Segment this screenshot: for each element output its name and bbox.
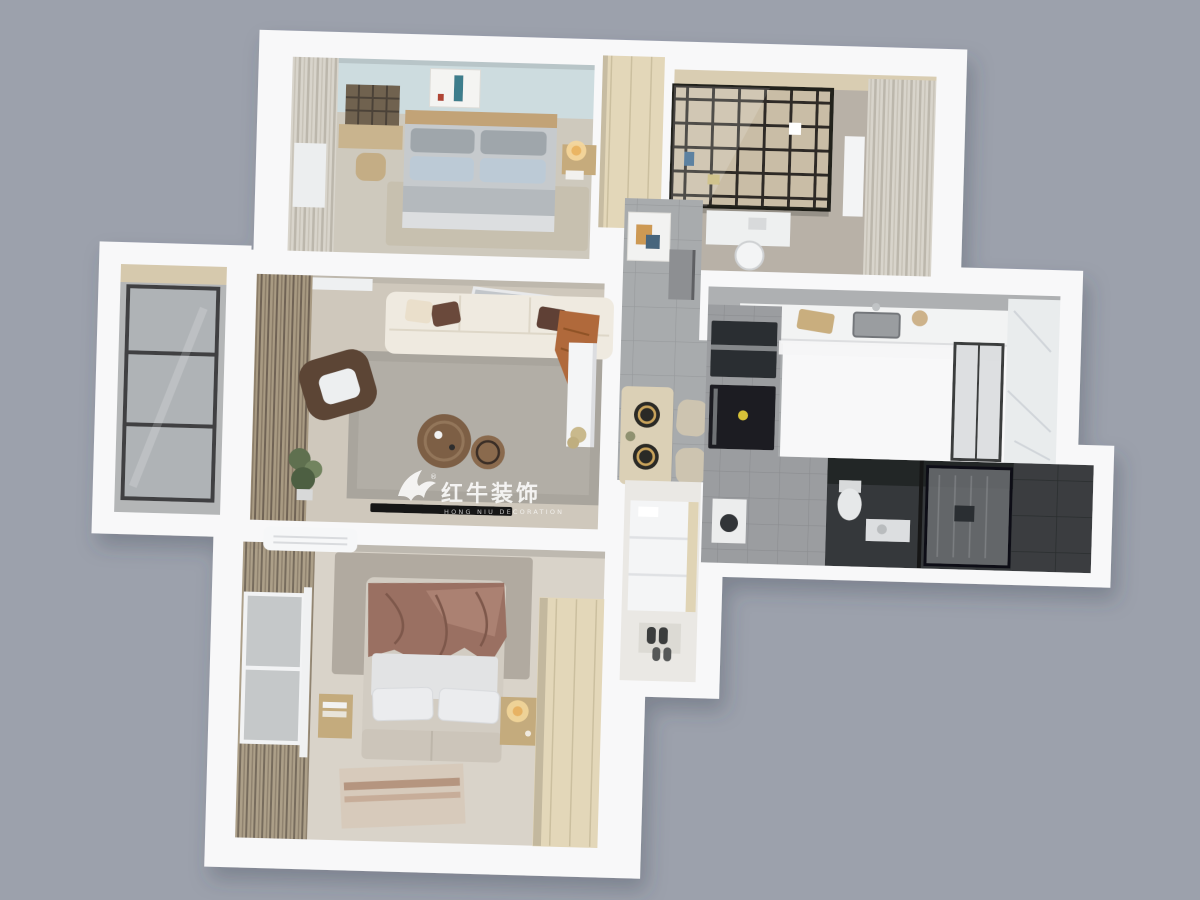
vanity bbox=[866, 519, 911, 542]
master-bed bbox=[361, 577, 508, 763]
marble-wall bbox=[1004, 299, 1061, 466]
pillow-1 bbox=[372, 687, 433, 720]
pillow-blue-2 bbox=[479, 158, 546, 184]
wall-art bbox=[430, 69, 481, 108]
registered-mark: ® bbox=[430, 473, 437, 481]
dining-chair-1 bbox=[675, 399, 708, 438]
bookshelf-glass bbox=[671, 85, 832, 216]
bench-seam bbox=[431, 731, 432, 761]
pillow-grey-2 bbox=[480, 130, 547, 156]
living-rug-inner bbox=[357, 361, 592, 495]
study-curtains bbox=[863, 79, 936, 277]
dining-set bbox=[619, 386, 709, 486]
plant-pot bbox=[296, 489, 312, 500]
desk-chair bbox=[355, 153, 386, 182]
watermark-en: HONG NIU DECORATION bbox=[444, 508, 564, 516]
bathroom-dark-tiles bbox=[1011, 463, 1094, 573]
floorplan-render: ® 红牛装饰 HONG NIU DECORATION bbox=[0, 0, 1200, 900]
book-2 bbox=[322, 711, 346, 718]
floorplan-svg: ® 红牛装饰 HONG NIU DECORATION bbox=[0, 0, 1200, 900]
room-corridor bbox=[620, 480, 702, 682]
pillow-cream bbox=[404, 299, 433, 324]
kitchen-glass-door bbox=[952, 343, 1003, 460]
desk bbox=[338, 124, 403, 150]
book-1 bbox=[323, 702, 347, 709]
slipper-4 bbox=[663, 647, 671, 661]
shower-niche bbox=[954, 505, 974, 522]
pillow-blue-1 bbox=[409, 156, 474, 182]
art-shape-teal bbox=[454, 75, 464, 101]
pillow-grey-1 bbox=[410, 128, 475, 154]
slipper-1 bbox=[647, 627, 656, 644]
tray bbox=[638, 507, 658, 518]
room-living bbox=[250, 274, 615, 530]
master-wardrobe bbox=[533, 598, 604, 848]
laptop bbox=[748, 217, 766, 229]
marble-partition bbox=[1004, 299, 1061, 466]
room-study bbox=[669, 69, 936, 276]
magazine bbox=[566, 170, 584, 179]
shelf-unit bbox=[345, 84, 400, 125]
balcony-wood-trim bbox=[120, 264, 226, 285]
master-window bbox=[241, 586, 312, 758]
window-panel bbox=[293, 143, 327, 208]
room-bedroom-secondary bbox=[287, 57, 598, 259]
balcony-glazing bbox=[122, 286, 218, 500]
sink bbox=[853, 312, 900, 337]
watermark-cn: 红牛装饰 bbox=[441, 481, 541, 507]
slipper-2 bbox=[659, 627, 668, 644]
shower-enclosure bbox=[925, 467, 1012, 567]
window-bar bbox=[244, 668, 302, 670]
master-nightstand-right bbox=[500, 697, 537, 746]
desk-chair-white bbox=[735, 241, 764, 270]
tall-unit-column bbox=[704, 304, 782, 458]
pillow-2 bbox=[438, 688, 500, 724]
room-master-bedroom bbox=[235, 526, 606, 848]
slipper-3 bbox=[652, 647, 660, 661]
master-nightstand-left bbox=[318, 694, 353, 739]
room-bathroom bbox=[701, 454, 1094, 573]
foot-rug bbox=[339, 763, 465, 828]
toilet bbox=[837, 480, 862, 521]
room-balcony bbox=[114, 264, 227, 515]
entry-art-mat bbox=[627, 212, 670, 261]
mat-art-blue bbox=[646, 235, 660, 249]
window-ledge bbox=[312, 277, 372, 291]
art-shape-red bbox=[438, 94, 444, 101]
shoe-cabinet bbox=[628, 500, 699, 612]
nightstand-lamp bbox=[562, 140, 597, 180]
wall-board bbox=[843, 136, 865, 217]
bed-double bbox=[402, 110, 557, 232]
air-conditioner bbox=[263, 526, 358, 553]
console-table bbox=[566, 343, 597, 450]
ac-body bbox=[263, 526, 358, 553]
dining-chair-2 bbox=[675, 448, 706, 485]
book-white bbox=[789, 123, 801, 135]
